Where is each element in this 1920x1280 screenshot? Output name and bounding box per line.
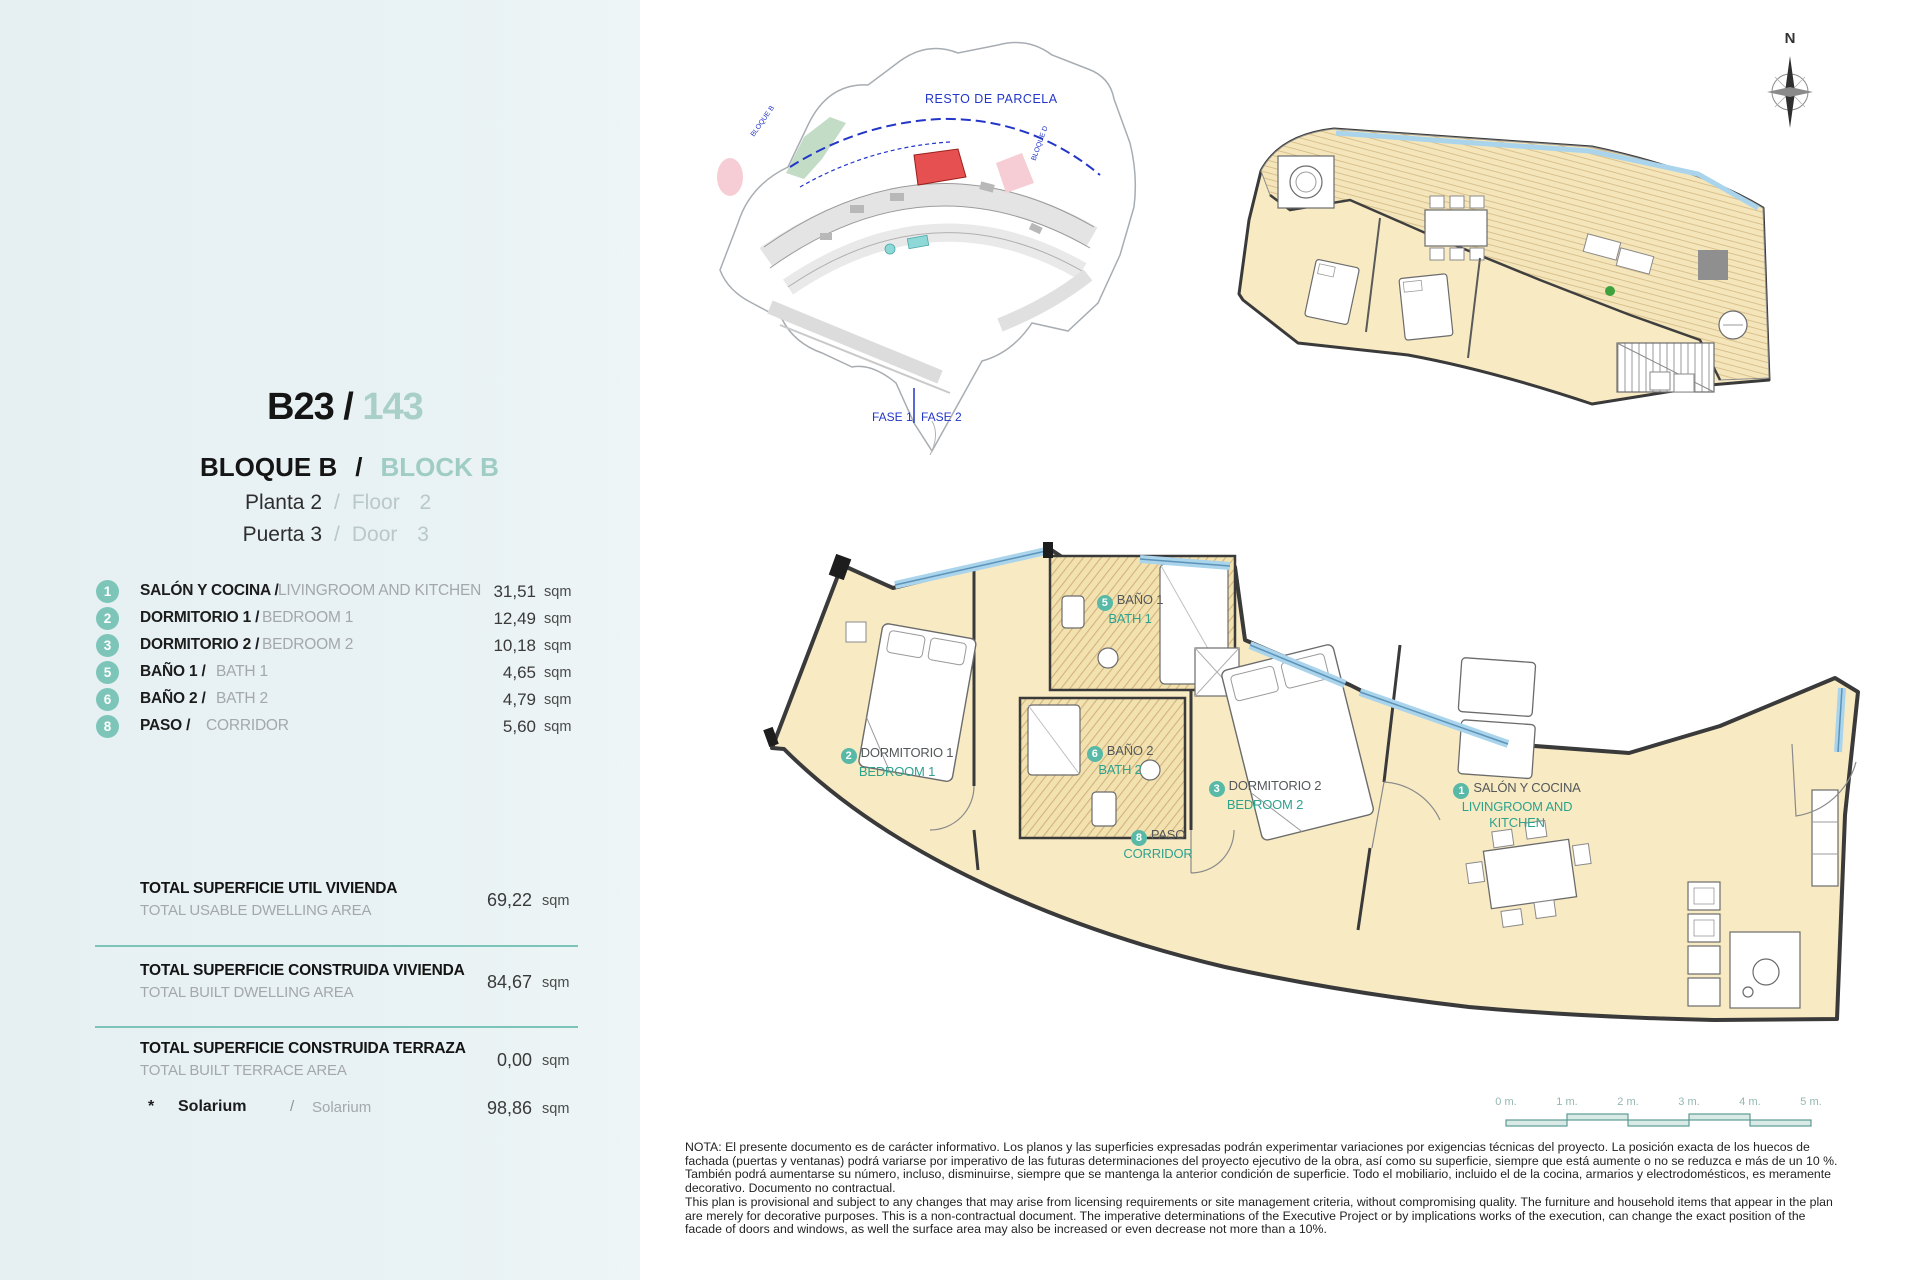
label-es: DORMITORIO 1 [861, 745, 954, 760]
room-name-es: SALÓN Y COCINA / [140, 582, 279, 600]
plan-label-bedroom2: 3DORMITORIO 2 BEDROOM 2 [1180, 778, 1350, 813]
room-row-bedroom1: 2 DORMITORIO 1 / BEDROOM 1 12,49 sqm [0, 607, 640, 633]
total-built-area: TOTAL SUPERFICIE CONSTRUIDA VIVIENDA TOT… [140, 962, 620, 1001]
room-number-badge: 8 [1131, 830, 1147, 846]
room-row-bedroom2: 3 DORMITORIO 2 / BEDROOM 2 10,18 sqm [0, 634, 640, 660]
green-dot [1605, 286, 1615, 296]
solarium-plan-drawing [1230, 100, 1790, 410]
fase1-label: FASE 1 [872, 410, 913, 424]
door-separator: / [334, 523, 340, 546]
solarium-value: 98,86 [448, 1098, 532, 1119]
floor-es: Planta 2 [190, 491, 322, 515]
divider [95, 1026, 578, 1028]
room-row-bath1: 5 BAÑO 1 / BATH 1 4,65 sqm [0, 661, 640, 687]
pink-area [717, 158, 743, 196]
solarium-separator: / [290, 1098, 294, 1115]
total-usable-area: TOTAL SUPERFICIE UTIL VIVIENDA TOTAL USA… [140, 880, 620, 919]
unit-separator: / [343, 386, 362, 428]
label-es: BAÑO 2 [1107, 743, 1153, 758]
room-area-unit: sqm [544, 584, 571, 600]
legal-note-en: This plan is provisional and subject to … [685, 1196, 1845, 1237]
room-area-value: 12,49 [452, 609, 536, 629]
plan-label-livingroom: 1SALÓN Y COCINA LIVINGROOM AND KITCHEN [1442, 780, 1592, 831]
unit-code: B23 [267, 386, 334, 428]
room-area-unit: sqm [544, 665, 571, 681]
scale-tick-2: 2 m. [1608, 1096, 1648, 1108]
total-value: 0,00 [448, 1050, 532, 1071]
room-number-badge: 3 [1209, 781, 1225, 797]
label-es: BAÑO 1 [1117, 592, 1163, 607]
room-name-es: DORMITORIO 2 / [140, 636, 259, 654]
north-label: N [1770, 30, 1810, 47]
room-area-value: 4,65 [452, 663, 536, 683]
label-en: BEDROOM 1 [812, 764, 982, 780]
room-area-value: 31,51 [452, 582, 536, 602]
floor-separator: / [334, 491, 340, 514]
nightstand [846, 622, 866, 642]
room-number-badge: 2 [841, 748, 857, 764]
sink [1098, 648, 1118, 668]
plan-label-corridor: 8PASO CORRIDOR [1083, 827, 1233, 862]
scale-tick-1: 1 m. [1547, 1096, 1587, 1108]
room-name-en: BEDROOM 1 [262, 609, 353, 627]
room-row-salon: 1 SALÓN Y COCINA / LIVINGROOM AND KITCHE… [0, 580, 640, 606]
scale-tick-3: 3 m. [1669, 1096, 1709, 1108]
door-en: Door 3 [352, 523, 429, 546]
plan-label-bath1: 5BAÑO 1 BATH 1 [1055, 592, 1205, 627]
room-number-badge: 6 [1087, 746, 1103, 762]
room-area-unit: sqm [544, 638, 571, 654]
fase2-label: FASE 2 [921, 410, 962, 424]
door-es: Puerta 3 [190, 523, 322, 547]
solarium-row: * Solarium / Solarium 98,86 sqm [140, 1096, 620, 1120]
room-name-es: PASO / [140, 717, 190, 735]
room-number-badge: 5 [96, 661, 119, 684]
plan-label-bedroom1: 2DORMITORIO 1 BEDROOM 1 [812, 745, 982, 780]
unit-title: B23 / 143 [267, 386, 423, 429]
room-name-en: LIVINGROOM AND KITCHEN [278, 582, 481, 600]
label-es: DORMITORIO 2 [1229, 778, 1322, 793]
room-area-unit: sqm [544, 611, 571, 627]
total-unit: sqm [542, 975, 569, 991]
total-unit: sqm [542, 1053, 569, 1069]
dining-table [1425, 196, 1487, 260]
room-name-en: BEDROOM 2 [262, 636, 353, 654]
room-area-value: 5,60 [452, 717, 536, 737]
resto-de-parcela-label: RESTO DE PARCELA [925, 92, 1058, 106]
room-number-badge: 6 [96, 688, 119, 711]
room-number-badge: 8 [96, 715, 119, 738]
total-value: 84,67 [448, 972, 532, 993]
label-en: BEDROOM 2 [1180, 797, 1350, 813]
room-area-value: 4,79 [452, 690, 536, 710]
solarium-label-es: Solarium [178, 1098, 246, 1116]
room-area-value: 10,18 [452, 636, 536, 656]
gray-furniture [1698, 250, 1728, 280]
toilet [1092, 792, 1116, 826]
room-area-unit: sqm [544, 692, 571, 708]
unit-number: 143 [362, 386, 422, 428]
plan-label-bath2: 6BAÑO 2 BATH 2 [1045, 743, 1195, 778]
room-number-badge: 2 [96, 607, 119, 630]
legal-note: NOTA: El presente documento es de caráct… [685, 1141, 1845, 1237]
room-area-unit: sqm [544, 719, 571, 735]
room-name-en: BATH 2 [216, 690, 268, 708]
scale-bar [1490, 1092, 1830, 1132]
block-name-en: BLOCK B [380, 452, 498, 482]
room-row-bath2: 6 BAÑO 2 / BATH 2 4,79 sqm [0, 688, 640, 714]
room-name-es: BAÑO 1 / [140, 663, 206, 681]
label-es: SALÓN Y COCINA [1473, 780, 1580, 795]
room-name-en: CORRIDOR [206, 717, 289, 735]
label-en: BATH 2 [1045, 762, 1195, 778]
solarium-unit: sqm [542, 1101, 569, 1117]
total-value: 69,22 [448, 890, 532, 911]
jacuzzi [1290, 166, 1322, 198]
room-number-badge: 5 [1097, 595, 1113, 611]
floor-en: Floor 2 [352, 491, 431, 514]
sofa [1454, 658, 1540, 779]
total-unit: sqm [542, 893, 569, 909]
scale-tick-5: 5 m. [1791, 1096, 1831, 1108]
total-terrace-area: TOTAL SUPERFICIE CONSTRUIDA TERRAZA TOTA… [140, 1040, 620, 1079]
label-en: CORRIDOR [1083, 846, 1233, 862]
solarium-asterisk: * [148, 1098, 154, 1116]
label-en: LIVINGROOM AND KITCHEN [1442, 799, 1592, 831]
bed [1399, 274, 1453, 341]
room-name-en: BATH 1 [216, 663, 268, 681]
room-name-es: DORMITORIO 1 / [140, 609, 259, 627]
divider [95, 945, 578, 947]
solarium-label-en: Solarium [312, 1099, 371, 1116]
room-number-badge: 3 [96, 634, 119, 657]
room-row-corridor: 8 PASO / CORRIDOR 5,60 sqm [0, 715, 640, 741]
scale-tick-4: 4 m. [1730, 1096, 1770, 1108]
label-en: BATH 1 [1055, 611, 1205, 627]
floor-line: Planta 2/Floor 2 [190, 491, 431, 515]
scale-tick-0: 0 m. [1486, 1096, 1526, 1108]
label-es: PASO [1151, 827, 1185, 842]
door-jamb [1043, 542, 1053, 558]
room-number-badge: 1 [1453, 783, 1469, 799]
legal-note-es: NOTA: El presente documento es de caráct… [685, 1141, 1845, 1196]
room-name-es: BAÑO 2 / [140, 690, 206, 708]
door-line: Puerta 3/Door 3 [190, 523, 429, 547]
block-separator: / [355, 452, 362, 482]
block-name-es: BLOQUE B [200, 452, 337, 482]
room-number-badge: 1 [96, 580, 119, 603]
floorplan-sheet: B23 / 143 BLOQUE B/BLOCK B Planta 2/Floo… [0, 0, 1920, 1280]
site-plan-drawing [700, 25, 1140, 470]
block-line: BLOQUE B/BLOCK B [200, 452, 499, 483]
